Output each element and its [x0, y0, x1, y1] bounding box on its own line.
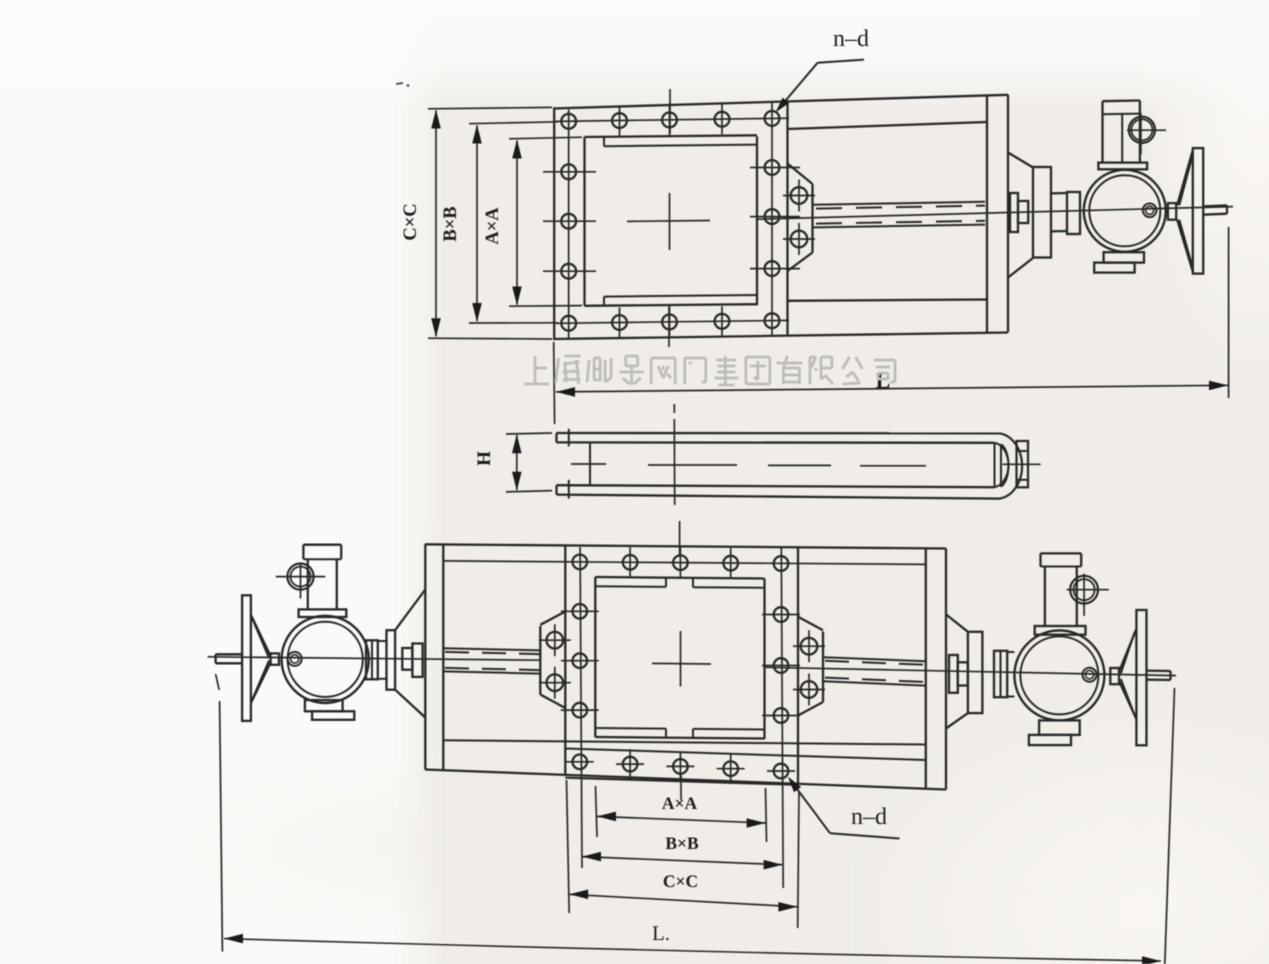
svg-text:C×C: C×C — [663, 871, 698, 891]
svg-text:A×A: A×A — [662, 793, 698, 813]
svg-text:n–d: n–d — [833, 26, 869, 52]
svg-text:B×B: B×B — [441, 206, 461, 241]
svg-text:H: H — [474, 451, 495, 466]
svg-text:L.: L. — [652, 921, 670, 945]
svg-text:B×B: B×B — [665, 833, 699, 853]
svg-text:n–d: n–d — [851, 804, 887, 830]
svg-text:C×C: C×C — [401, 203, 421, 240]
svg-text:A×A: A×A — [483, 207, 503, 245]
